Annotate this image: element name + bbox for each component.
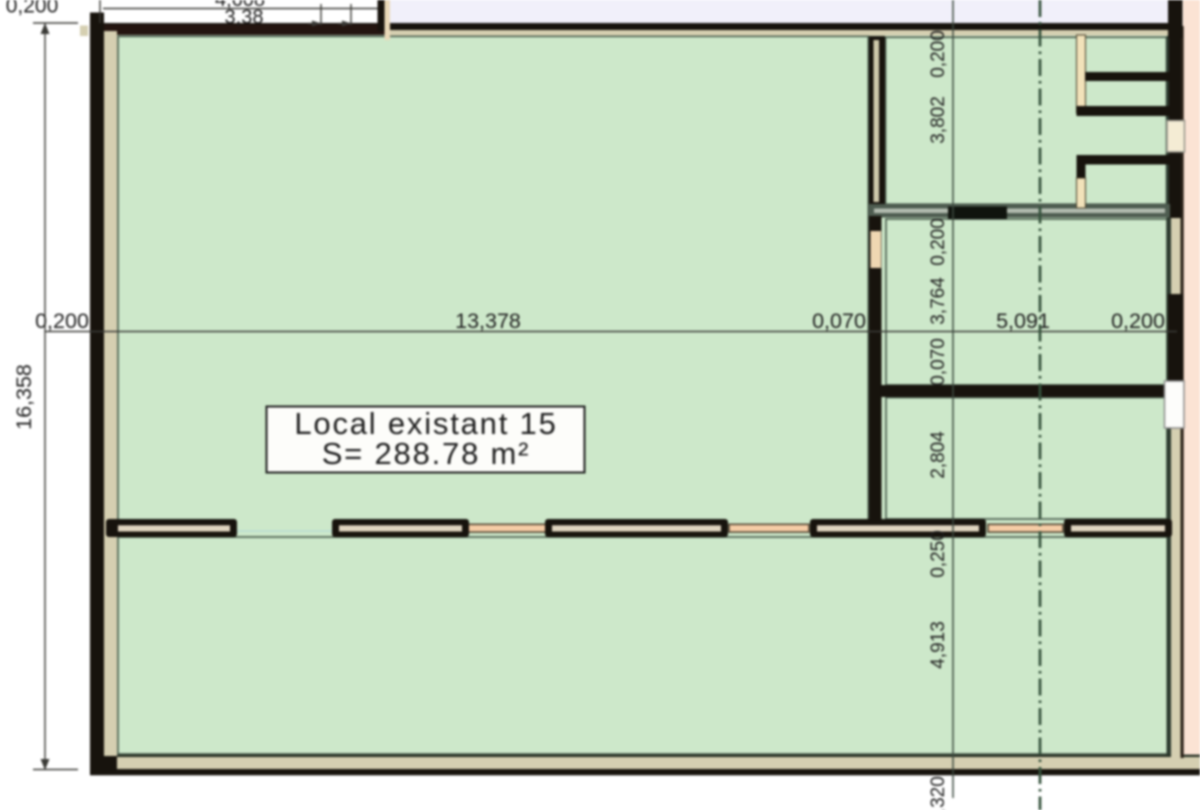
svg-text:5,091: 5,091 — [996, 309, 1050, 333]
svg-text:16,358: 16,358 — [12, 364, 36, 430]
svg-text:0,320: 0,320 — [928, 776, 949, 810]
svg-text:2,804: 2,804 — [928, 431, 949, 479]
svg-text:0,200: 0,200 — [1111, 309, 1165, 333]
svg-text:0,070: 0,070 — [928, 338, 949, 386]
svg-text:3,38: 3,38 — [225, 7, 264, 29]
svg-text:13,378: 13,378 — [455, 309, 521, 333]
svg-text:4,913: 4,913 — [928, 621, 949, 669]
svg-text:0,200: 0,200 — [928, 218, 949, 266]
svg-text:0,200: 0,200 — [6, 0, 59, 18]
svg-text:0,200: 0,200 — [35, 309, 89, 333]
svg-text:0,070: 0,070 — [812, 309, 866, 333]
svg-text:3,802: 3,802 — [928, 96, 949, 144]
svg-text:0,200: 0,200 — [928, 30, 949, 78]
svg-text:S= 288.78 m²: S= 288.78 m² — [322, 436, 531, 471]
svg-text:3,764: 3,764 — [928, 277, 949, 325]
svg-text:0,250: 0,250 — [928, 530, 949, 578]
